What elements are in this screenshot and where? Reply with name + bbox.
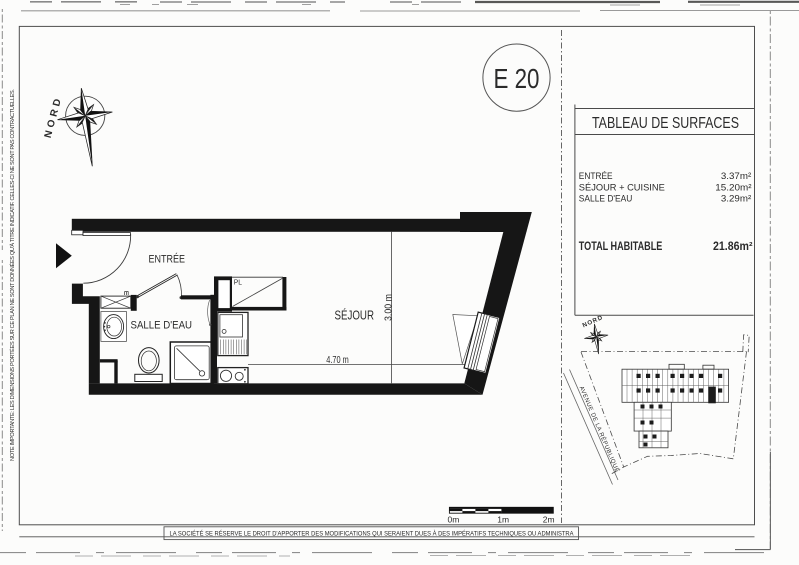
svg-text:SALLE D'EAU: SALLE D'EAU <box>131 320 193 332</box>
svg-text:3.00 m: 3.00 m <box>382 294 394 321</box>
svg-text:SÉJOUR + CUISINE: SÉJOUR + CUISINE <box>579 182 665 193</box>
svg-text:3.29m²: 3.29m² <box>721 193 751 204</box>
svg-text:E 20: E 20 <box>494 63 540 94</box>
svg-text:21.86m²: 21.86m² <box>713 241 753 253</box>
svg-text:4.70 m: 4.70 m <box>326 354 349 366</box>
svg-text:ENTRÉE: ENTRÉE <box>579 171 613 182</box>
svg-text:3.37m²: 3.37m² <box>721 171 751 182</box>
svg-text:SÉJOUR: SÉJOUR <box>335 308 375 323</box>
svg-text:ENTRÉE: ENTRÉE <box>149 252 186 265</box>
svg-text:1m: 1m <box>497 514 509 524</box>
svg-text:0m: 0m <box>448 514 460 524</box>
svg-text:15.20m²: 15.20m² <box>715 182 751 193</box>
svg-text:LA SOCIÉTÉ SE RÉSERVE LE DROIT: LA SOCIÉTÉ SE RÉSERVE LE DROIT D'APPORTE… <box>170 528 575 537</box>
svg-text:2m: 2m <box>543 514 555 524</box>
svg-text:PL: PL <box>234 280 242 287</box>
svg-text:NOTE IMPORTANTE: LES DIMENSION: NOTE IMPORTANTE: LES DIMENSIONS PORTÉES … <box>9 89 16 461</box>
svg-text:TOTAL HABITABLE: TOTAL HABITABLE <box>579 241 663 253</box>
svg-text:TABLEAU DE SURFACES: TABLEAU DE SURFACES <box>592 115 739 132</box>
svg-text:SALLE D'EAU: SALLE D'EAU <box>579 193 633 204</box>
